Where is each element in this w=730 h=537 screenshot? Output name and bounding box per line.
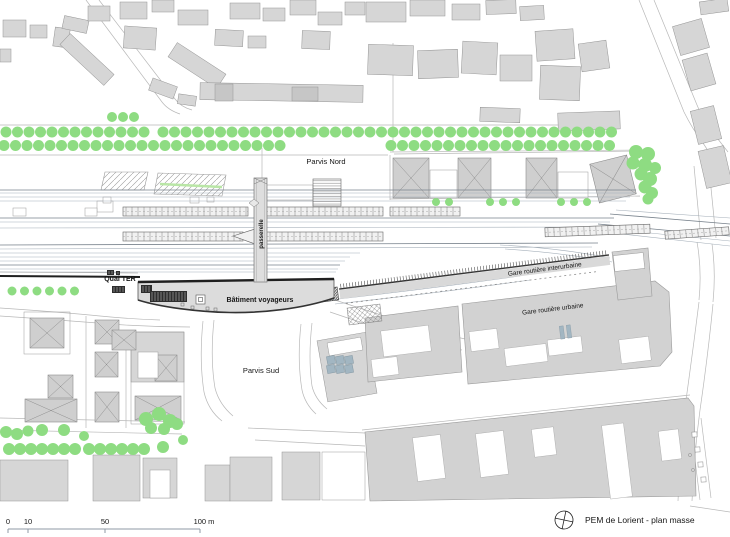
platform-canopy <box>255 232 383 241</box>
panel <box>326 355 335 364</box>
street-line <box>248 428 365 433</box>
tree <box>445 198 453 206</box>
tree <box>330 127 341 138</box>
tree <box>411 127 422 138</box>
white-building <box>265 185 313 200</box>
tree <box>296 127 307 138</box>
white-building <box>85 208 97 216</box>
tree <box>194 140 205 151</box>
tree <box>79 431 89 441</box>
tree <box>116 443 128 455</box>
building <box>366 2 406 22</box>
building <box>480 107 520 122</box>
building <box>149 78 178 99</box>
street-line <box>255 440 365 446</box>
buildings-layer <box>0 0 730 501</box>
tree <box>58 443 70 455</box>
tree <box>560 127 571 138</box>
tree <box>171 140 182 151</box>
tree <box>114 140 125 151</box>
tree <box>319 127 330 138</box>
tree <box>36 424 48 436</box>
building <box>539 65 580 100</box>
building <box>690 106 722 145</box>
tree <box>58 424 70 436</box>
tree <box>204 127 215 138</box>
tree <box>158 423 170 435</box>
tree <box>468 127 479 138</box>
tree <box>3 443 15 455</box>
panel <box>344 364 353 373</box>
tree <box>524 140 535 151</box>
courtyard <box>475 430 508 477</box>
tree <box>353 127 364 138</box>
lattice-canopy <box>347 304 382 325</box>
tree <box>160 140 171 151</box>
tree <box>22 140 33 151</box>
tree <box>148 140 159 151</box>
tree <box>514 127 525 138</box>
tree <box>23 426 34 437</box>
building <box>177 94 196 106</box>
tree <box>129 112 139 122</box>
tree <box>125 140 136 151</box>
north-compass-icon <box>553 509 574 530</box>
tree <box>261 127 272 138</box>
tree <box>36 443 48 455</box>
tree <box>466 140 477 151</box>
tree <box>139 127 150 138</box>
tree <box>547 140 558 151</box>
tree <box>70 287 79 296</box>
white-building <box>190 197 199 203</box>
tree <box>35 127 46 138</box>
white-building <box>150 470 170 498</box>
tree <box>455 140 466 151</box>
tree <box>549 127 560 138</box>
tree <box>183 140 194 151</box>
tree <box>342 127 353 138</box>
building <box>123 26 156 50</box>
tree <box>365 127 376 138</box>
building <box>520 5 545 20</box>
tree <box>171 418 183 430</box>
tree <box>0 426 12 438</box>
tree <box>127 443 139 455</box>
building <box>682 53 716 91</box>
white-building <box>558 172 588 198</box>
building <box>168 43 226 89</box>
tree <box>457 127 468 138</box>
platform-canopies-layer <box>123 207 729 244</box>
scale-tick-label: 50 <box>101 517 109 526</box>
street-line <box>201 321 222 421</box>
building <box>152 0 174 12</box>
building <box>0 49 11 62</box>
tree <box>480 127 491 138</box>
street-line <box>697 242 700 300</box>
tree <box>643 194 654 205</box>
tree <box>275 140 286 151</box>
building <box>120 2 147 19</box>
street-line <box>690 506 730 512</box>
tree <box>570 198 578 206</box>
panel <box>344 355 353 364</box>
tree <box>118 112 128 122</box>
tree <box>273 127 284 138</box>
tree <box>206 140 217 151</box>
tree <box>503 127 514 138</box>
tree <box>501 140 512 151</box>
tree <box>420 140 431 151</box>
tree <box>240 140 251 151</box>
tree <box>47 443 59 455</box>
tree <box>178 435 188 445</box>
pier-berth <box>698 462 703 467</box>
tree <box>512 198 520 206</box>
scale-tick-label: 100 m <box>194 517 215 526</box>
street-line <box>701 418 711 498</box>
panel <box>326 364 335 373</box>
panel <box>335 355 344 364</box>
scale-tick-label: 10 <box>24 517 32 526</box>
tree <box>535 140 546 151</box>
scale-tick-label: 0 <box>6 517 10 526</box>
pier-berth <box>692 432 697 437</box>
tree <box>33 140 44 151</box>
white-building <box>613 252 645 271</box>
site-plan-canvas: Parvis NordParvis SudQuai TERBâtiment vo… <box>0 0 730 537</box>
tree <box>570 140 581 151</box>
tree <box>307 127 318 138</box>
building <box>0 460 68 501</box>
tree <box>104 127 115 138</box>
tree <box>252 140 263 151</box>
tree <box>558 140 569 151</box>
tree <box>399 127 410 138</box>
building <box>292 87 318 101</box>
tree <box>386 140 397 151</box>
tree <box>486 198 494 206</box>
white-building <box>13 208 26 216</box>
building <box>3 20 26 37</box>
tree <box>284 127 295 138</box>
north-entrance-canopy <box>313 179 341 206</box>
building <box>282 452 320 500</box>
building <box>410 0 445 16</box>
tree <box>14 443 26 455</box>
tree <box>158 127 169 138</box>
label-passerelle: passerelle <box>259 219 265 249</box>
tree <box>8 287 17 296</box>
title-block: PEM de Lorient - plan masse <box>553 509 695 530</box>
tree <box>70 127 81 138</box>
white-building <box>322 452 365 500</box>
building <box>215 84 233 101</box>
white-building <box>430 170 457 198</box>
tree <box>169 127 180 138</box>
lift-shaft <box>199 298 203 302</box>
tree <box>102 140 113 151</box>
tree <box>491 127 502 138</box>
tree <box>581 140 592 151</box>
label-parvis-nord: Parvis Nord <box>306 157 345 166</box>
building <box>178 10 208 25</box>
tree <box>606 127 617 138</box>
courtyard <box>619 336 652 363</box>
building <box>461 41 498 75</box>
building <box>290 0 316 15</box>
pier-berth <box>695 447 700 452</box>
building <box>230 457 272 501</box>
tree <box>215 127 226 138</box>
street-line <box>712 244 714 302</box>
tree <box>116 127 127 138</box>
courtyard <box>469 328 499 351</box>
tree <box>409 140 420 151</box>
tree <box>250 127 261 138</box>
label-batiment-voyageurs: Bâtiment voyageurs <box>227 297 294 304</box>
building <box>698 146 730 189</box>
tree <box>238 127 249 138</box>
white-building <box>138 352 158 378</box>
tree <box>443 140 454 151</box>
building <box>30 25 47 38</box>
tree <box>526 127 537 138</box>
building <box>302 31 331 50</box>
panel <box>335 364 344 373</box>
tree <box>33 287 42 296</box>
building <box>418 49 459 78</box>
building <box>318 12 342 25</box>
tree <box>25 443 37 455</box>
tree <box>45 140 56 151</box>
building <box>263 8 285 21</box>
tree <box>499 198 507 206</box>
tree <box>627 157 640 170</box>
label-parvis-sud: Parvis Sud <box>243 366 279 375</box>
white-building <box>103 197 111 203</box>
building <box>345 2 365 15</box>
tree <box>263 140 274 151</box>
site-plan-svg: Parvis NordParvis SudQuai TERBâtiment vo… <box>0 0 730 537</box>
tree <box>56 140 67 151</box>
tree <box>45 287 54 296</box>
tree <box>58 287 67 296</box>
tree <box>138 443 150 455</box>
platform-canopy <box>390 207 460 216</box>
tree <box>227 127 238 138</box>
tree <box>20 287 29 296</box>
platform-canopy <box>262 207 383 216</box>
station-building-layer <box>107 270 334 313</box>
tree <box>376 127 387 138</box>
tree <box>432 140 443 151</box>
tree <box>557 198 565 206</box>
platform-canopy <box>545 224 650 237</box>
platform-canopy <box>123 232 243 241</box>
tree <box>217 140 228 151</box>
tree <box>583 198 591 206</box>
tree <box>192 127 203 138</box>
building <box>578 40 610 72</box>
building <box>93 455 140 501</box>
tree <box>107 112 117 122</box>
tree <box>397 140 408 151</box>
tree <box>512 140 523 151</box>
tree <box>91 140 102 151</box>
tree <box>137 140 148 151</box>
courtyard <box>658 429 682 461</box>
tree <box>593 140 604 151</box>
tree <box>105 443 117 455</box>
street-line <box>299 324 316 414</box>
platform-canopy <box>665 227 729 239</box>
building <box>672 18 709 55</box>
courtyard <box>412 434 445 481</box>
tree <box>81 127 92 138</box>
tree <box>93 127 104 138</box>
tree <box>94 443 106 455</box>
courtyard <box>381 325 432 357</box>
tree <box>69 443 81 455</box>
building <box>215 29 244 46</box>
tree <box>432 198 440 206</box>
tree <box>83 443 95 455</box>
stair-block <box>150 291 187 302</box>
tree <box>58 127 69 138</box>
courtyard <box>371 356 399 377</box>
tree <box>68 140 79 151</box>
building <box>60 34 114 86</box>
tree <box>12 127 23 138</box>
tree <box>478 140 489 151</box>
label-quai-ter: Quai TER <box>104 276 136 283</box>
tree <box>572 127 583 138</box>
tree <box>47 127 58 138</box>
tree <box>1 127 12 138</box>
building <box>248 36 266 48</box>
tree <box>229 140 240 151</box>
tree <box>445 127 456 138</box>
building <box>500 55 532 81</box>
tree <box>24 127 35 138</box>
building <box>452 4 480 20</box>
platform-canopy <box>123 207 248 216</box>
tree <box>583 127 594 138</box>
tree <box>434 127 445 138</box>
scale-bar: 01050100 m <box>6 517 215 533</box>
tree <box>537 127 548 138</box>
building <box>230 3 260 19</box>
tree <box>157 441 169 453</box>
building <box>367 44 413 76</box>
tree <box>145 422 157 434</box>
building <box>535 29 575 62</box>
street-line <box>212 320 233 416</box>
building <box>486 0 516 15</box>
tree <box>388 127 399 138</box>
tree <box>127 127 138 138</box>
canopy-taper <box>233 229 255 244</box>
building <box>205 465 230 501</box>
courtyard <box>531 427 556 457</box>
plan-title: PEM de Lorient - plan masse <box>585 515 695 525</box>
parking-area <box>101 172 148 190</box>
pier-berth <box>701 477 706 482</box>
parking-layer <box>101 172 226 196</box>
tree <box>10 140 21 151</box>
tree <box>79 140 90 151</box>
tree <box>595 127 606 138</box>
tree <box>422 127 433 138</box>
building <box>88 6 110 21</box>
tree <box>181 127 192 138</box>
stair-block <box>107 270 114 275</box>
tree <box>604 140 615 151</box>
tree <box>0 140 10 151</box>
tree <box>11 428 23 440</box>
tree <box>489 140 500 151</box>
building <box>699 0 729 15</box>
